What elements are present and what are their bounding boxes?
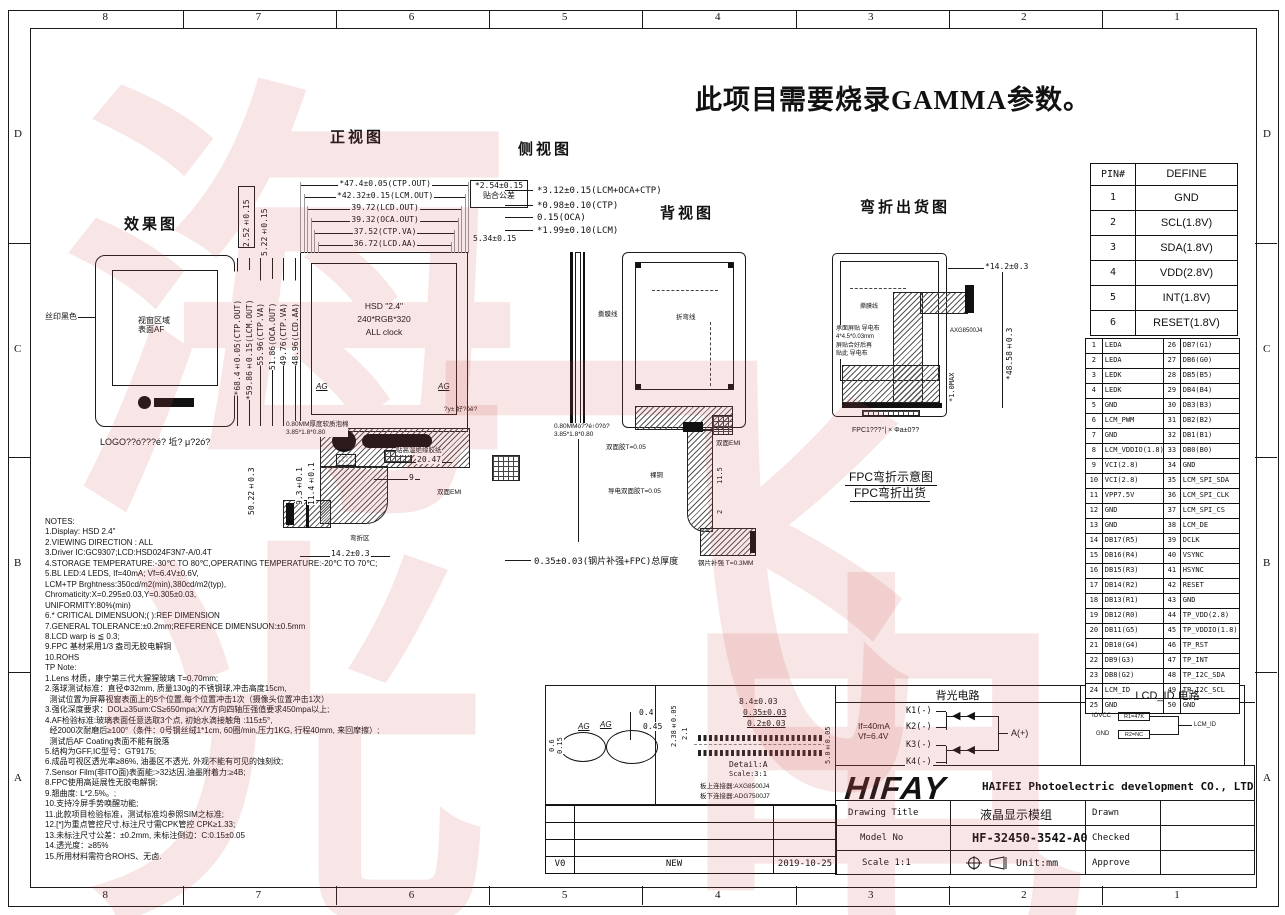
notes-block: NOTES:1.Display: HSD 2.4"2.VIEWING DIREC… bbox=[45, 517, 345, 862]
pin-num-left: 9 bbox=[1086, 459, 1103, 473]
side-bottom-note: 0.35±0.03(钢片补强+FPC)总厚度 bbox=[533, 554, 679, 567]
front-vdim-label: 51.86(OCA.OUT) bbox=[268, 279, 277, 370]
brand-logo-icon bbox=[138, 396, 151, 409]
note-line: 13.未标注尺寸公差：±0.2mm, 未标注倒边：C:0.15±0.05 bbox=[45, 831, 345, 841]
pin-num-right: 36 bbox=[1164, 489, 1181, 503]
back-stiff-label: 钢片补强 T=0.3MM bbox=[698, 560, 753, 568]
back-dash-h bbox=[652, 290, 718, 291]
bend-view-title: 弯折出货图 bbox=[858, 196, 952, 217]
lcdid-title: LCD_ID 电路 bbox=[1080, 687, 1255, 703]
tb-col-1 bbox=[950, 800, 951, 875]
note-line: 6.成品可视区透光率≥86%, 油墨区不透光, 外观不能有可见的蚀刻纹; bbox=[45, 757, 345, 767]
pin-name-left: GND bbox=[1103, 429, 1164, 443]
bend-bottom-block bbox=[842, 365, 940, 403]
revision-rev: V0 bbox=[546, 857, 575, 873]
revision-empty-row bbox=[546, 839, 836, 856]
pin-name-left: DB16(R4) bbox=[1103, 549, 1164, 563]
pin-define-num: 4 bbox=[1091, 261, 1136, 285]
company-logo: HIFAY bbox=[843, 770, 949, 807]
note-line: 6.* CRITICAL DIMENSUON;( ):REF DIMENSION bbox=[45, 611, 345, 621]
note-line: 测试位置为屏幕视窗表面上的5个位置,每个位置冲击1次（摄像头位置冲击1次） bbox=[45, 695, 345, 705]
pin-num-right: 35 bbox=[1164, 474, 1181, 488]
note-line: 测试后AF Coating表面不能有脱落 bbox=[45, 737, 345, 747]
front-bend-label: 弯折区 bbox=[350, 535, 370, 543]
pin-num-left: 5 bbox=[1086, 399, 1103, 413]
pin-define-header-num: PIN# bbox=[1091, 164, 1136, 185]
pin-define-header: PIN#DEFINE bbox=[1091, 164, 1237, 185]
back-corner-1 bbox=[636, 263, 641, 268]
pin-table-row: 15DB16(R4)40VSYNC bbox=[1086, 548, 1239, 563]
pin-name-right: DB3(B3) bbox=[1181, 399, 1239, 413]
note-line: 经2000次耐磨后≥100°（条件：0号钢丝绒1*1cm, 60圈/min,压力… bbox=[45, 726, 345, 736]
pin-num-right: 41 bbox=[1164, 564, 1181, 578]
revision-empty-date bbox=[774, 840, 836, 856]
pin-num-right: 29 bbox=[1164, 384, 1181, 398]
side-note-leader bbox=[505, 560, 531, 561]
pin-name-left: DB14(R2) bbox=[1103, 579, 1164, 593]
bend-dim-w: *14.2±0.3 bbox=[984, 262, 1029, 271]
note-line: 2.落球测试标准：直径Φ32mm, 质量130g的不锈钢球,冲击高度15cm, bbox=[45, 684, 345, 694]
pin-num-left: 8 bbox=[1086, 444, 1103, 458]
pin-name-left: GND bbox=[1103, 504, 1164, 518]
ag-dim-015: 0.15 bbox=[556, 726, 564, 754]
pin-define-value: VDD(2.8V) bbox=[1136, 261, 1237, 285]
pin-name-right: TP_INT bbox=[1181, 654, 1239, 668]
pin-table-row: 19DB12(R0)44TP_VDD(2.8) bbox=[1086, 608, 1239, 623]
front-hdim-label: 39.32(OCA.OUT) bbox=[350, 215, 419, 224]
back-bend-label: 折弯线 bbox=[676, 314, 696, 322]
pin-name-right: GND bbox=[1181, 594, 1239, 608]
pin-name-left: DB12(R0) bbox=[1103, 609, 1164, 623]
bl-wire-6 bbox=[998, 733, 1008, 734]
note-line: 8.FPC使用高延展性无胶电解铜; bbox=[45, 778, 345, 788]
led-pair-2: ◀◀ bbox=[952, 743, 981, 756]
front-hdim-ext-r bbox=[465, 194, 466, 253]
front-right-dim: 5.34±0.15 bbox=[472, 234, 517, 243]
front-hdim-label: *42.32±0.15(LCM.OUT) bbox=[336, 191, 434, 200]
pin-name-right: TP_VDDIO(1.8) bbox=[1181, 624, 1239, 638]
note-line: LCM+TP Brghtness:350cd/m2(min),380cd/m2(… bbox=[45, 580, 345, 590]
front-ag-right: AG bbox=[438, 382, 450, 391]
note-line: 4.AF检验标准:玻璃表面任意选取3个点, 初始水滴接触角 :115±5°, bbox=[45, 716, 345, 726]
brand-logo-text bbox=[154, 398, 194, 407]
pin-name-right: DB1(B1) bbox=[1181, 429, 1239, 443]
pin-num-right: 40 bbox=[1164, 549, 1181, 563]
side-dim-leader bbox=[505, 230, 533, 231]
note-line: 11.此款项目检验标准，测试标准均参照SIM之标准; bbox=[45, 810, 345, 820]
pin-num-left: 19 bbox=[1086, 609, 1103, 623]
pin-table-row: 4LEDK29DB4(B4) bbox=[1086, 383, 1239, 398]
pin-num-right: 45 bbox=[1164, 624, 1181, 638]
front-view-active-area bbox=[311, 263, 457, 415]
back-dash-v bbox=[710, 322, 711, 386]
front-hdim-ext-l bbox=[307, 206, 308, 253]
note-line: TP Note: bbox=[45, 663, 345, 673]
front-left-dim2: 5.22±0.15 bbox=[260, 196, 269, 256]
bend-connector bbox=[965, 285, 974, 313]
revision-empty-desc bbox=[575, 806, 774, 822]
tb-unit-value: Unit:mm bbox=[1016, 858, 1058, 869]
pin-name-left: VCI(2.8) bbox=[1103, 474, 1164, 488]
back-emi-label: 双面EMI bbox=[716, 440, 741, 448]
pin-num-right: 37 bbox=[1164, 504, 1181, 518]
front-dim-114: 11.4±0.1 bbox=[307, 450, 316, 505]
pin-num-left: 16 bbox=[1086, 564, 1103, 578]
bend-fpc-arm bbox=[920, 292, 968, 314]
tb-model-value: HF-32450-3542-A0 bbox=[972, 831, 1088, 845]
back-view-title: 背视图 bbox=[658, 202, 716, 223]
pin-name-right: LCM_SPI_CS bbox=[1181, 504, 1239, 518]
detail-a-conn2: 板下连接器:ADG7500J7 bbox=[700, 793, 770, 801]
note-line: 3.Driver IC:GC9307;LCD:HSD024F3N7-A/0.4T bbox=[45, 548, 345, 558]
pin-table-row: 23DB8(G2)48TP_I2C_SDA bbox=[1086, 668, 1239, 683]
pin-num-left: 23 bbox=[1086, 669, 1103, 683]
front-dim-142: 14.2±0.3 bbox=[330, 549, 371, 558]
front-hdim-ext-l bbox=[304, 194, 305, 253]
effect-view-title: 效果图 bbox=[122, 213, 180, 234]
effect-window-label: 视窗区域表面AF bbox=[138, 316, 170, 334]
side-view-title: 侧视图 bbox=[516, 138, 574, 159]
tape-label: 贴高温绝缘胶纸 bbox=[396, 447, 442, 455]
bend-note-block: 承面屏贴 导电布 4*4.5*0.03mm 屏贴合好后再 贴此 导电布 bbox=[836, 325, 880, 359]
front-hdim-ext-r bbox=[458, 218, 459, 253]
pin-num-right: 39 bbox=[1164, 534, 1181, 548]
pin-name-left: LEDA bbox=[1103, 339, 1164, 353]
lcdid-vcc: IOVCC bbox=[1092, 713, 1111, 721]
ag-stem bbox=[630, 712, 631, 740]
pin-table-row: 21DB10(G4)46TP_RST bbox=[1086, 638, 1239, 653]
company-name: HAIFEI Photoelectric development CO., LT… bbox=[982, 780, 1254, 793]
pin-name-right: TP_I2C_SDA bbox=[1181, 669, 1239, 683]
pin-name-right: LCM_SPI_CLK bbox=[1181, 489, 1239, 503]
pin-define-value: SDA(1.8V) bbox=[1136, 236, 1237, 260]
back-fpc-connector bbox=[750, 531, 756, 553]
note-line: 10.支持冷屏手势唤醒功能; bbox=[45, 799, 345, 809]
pin-name-left: GND bbox=[1103, 519, 1164, 533]
pin-num-right: 46 bbox=[1164, 639, 1181, 653]
side-dim-label: *1.99±0.10(LCM) bbox=[536, 226, 619, 236]
side-dim-label: *0.98±0.10(CTP) bbox=[536, 201, 619, 211]
ag-ellipse-left bbox=[560, 732, 606, 762]
pin-define-row: 6RESET(1.8V) bbox=[1091, 310, 1237, 335]
note-line: Chromaticity:X=0.295±0.03,Y=0.305±0.03, bbox=[45, 590, 345, 600]
pin-name-right: TP_VDD(2.8) bbox=[1181, 609, 1239, 623]
note-line: 12.[*]为重点管控尺寸,标注尺寸需CPK管控 CPK≥1.33; bbox=[45, 820, 345, 830]
bend-view-inner bbox=[840, 261, 939, 381]
pin-num-right: 47 bbox=[1164, 654, 1181, 668]
front-hdim-label: 39.72(LCD.OUT) bbox=[350, 203, 419, 212]
pin-table-row: 16DB15(R3)41HSYNC bbox=[1086, 563, 1239, 578]
pin-num-left: 17 bbox=[1086, 579, 1103, 593]
detail-a-pinrow-2 bbox=[698, 750, 822, 756]
pin-num-left: 21 bbox=[1086, 639, 1103, 653]
pin-name-left: GND bbox=[1103, 399, 1164, 413]
back-tear-label: 撕膜线 bbox=[598, 311, 618, 319]
front-fpc-foam bbox=[336, 454, 356, 466]
pin-table-row: 13GND38LCM_DE bbox=[1086, 518, 1239, 533]
back-view-inner bbox=[635, 262, 734, 390]
tb-line-3 bbox=[835, 850, 1255, 851]
detail-a-scale: Scale:3:1 bbox=[728, 770, 768, 778]
side-stack-1 bbox=[570, 252, 573, 432]
pin-name-left: DB8(G2) bbox=[1103, 669, 1164, 683]
front-ag-left: AG bbox=[316, 382, 328, 391]
pin-define-row: 2SCL(1.8V) bbox=[1091, 210, 1237, 235]
tb-model-label: Model No bbox=[860, 833, 903, 843]
revision-row: V0NEW2019-10-25 bbox=[546, 856, 836, 873]
revision-date: 2019-10-25 bbox=[774, 857, 836, 873]
pin-define-num: 2 bbox=[1091, 211, 1136, 235]
foam-label-2: 0.80MMò??é↑0?ô?3.85*1.8*0.80 bbox=[554, 423, 610, 439]
pin-name-left: VPP7.5V bbox=[1103, 489, 1164, 503]
pin-table-row: 5GND30DB3(B3) bbox=[1086, 398, 1239, 413]
pin-name-right: DB0(B0) bbox=[1181, 444, 1239, 458]
pin-name-left: DB10(G4) bbox=[1103, 639, 1164, 653]
note-line: 3.强化深度要求：DOL≥35um:CS≥650mpa;X/Y方向四轴压强值要求… bbox=[45, 705, 345, 715]
pin-name-left: LCM_PWM bbox=[1103, 414, 1164, 428]
note-line: 8.LCD warp is ≦ 0.3; bbox=[45, 632, 345, 642]
detail-a-dim-left2: 2.1 bbox=[681, 700, 689, 740]
front-hdim-ext-l bbox=[318, 242, 319, 253]
front-fpc-connector bbox=[286, 503, 294, 525]
revision-empty-date bbox=[774, 823, 836, 839]
detail-a-dim-035: 0.35±0.03 bbox=[742, 708, 787, 717]
front-dim-50: 50.22±0.3 bbox=[247, 445, 256, 515]
pin-table-row: 14DB17(R5)39DCLK bbox=[1086, 533, 1239, 548]
detail-a-dim-right: 5.0±0.05 bbox=[824, 718, 832, 764]
backlight-k-wire bbox=[936, 727, 946, 728]
pin-num-left: 20 bbox=[1086, 624, 1103, 638]
bend-dim-h: *48.58±0.3 bbox=[1005, 300, 1014, 380]
back-cond-label: 导电双面胶T=0.05 bbox=[608, 488, 661, 496]
back-dim-115: 11.5 bbox=[716, 452, 724, 484]
note-line: 10.ROHS bbox=[45, 653, 345, 663]
detail-a-conn1: 板上连接器:AXG8500J4 bbox=[700, 783, 769, 791]
ag-dim-04: 0.4 bbox=[638, 708, 654, 717]
pin-num-left: 6 bbox=[1086, 414, 1103, 428]
detail-a-centerline bbox=[694, 744, 826, 745]
pin-num-right: 44 bbox=[1164, 609, 1181, 623]
detail-a-dim-84: 8.4±0.03 bbox=[738, 697, 779, 706]
pin-table-row: 18DB13(R1)43GND bbox=[1086, 593, 1239, 608]
pin-name-left: DB17(R5) bbox=[1103, 534, 1164, 548]
pin-name-right: DCLK bbox=[1181, 534, 1239, 548]
pin-num-right: 38 bbox=[1164, 519, 1181, 533]
tb-drawn-label: Drawn bbox=[1092, 808, 1119, 818]
front-hdim-label: 37.52(CTP.VA) bbox=[353, 227, 418, 236]
back-bare-label: 裸铜 bbox=[650, 472, 663, 480]
pin-num-right: 32 bbox=[1164, 429, 1181, 443]
front-fpc-ic bbox=[362, 434, 432, 448]
front-hdim-label: 36.72(LCD.AA) bbox=[353, 239, 418, 248]
ag-label-right: AG bbox=[600, 720, 612, 729]
backlight-spec: If=40mAVf=6.4V bbox=[858, 722, 890, 742]
pin-name-right: DB2(B2) bbox=[1181, 414, 1239, 428]
note-line: 7.Sensor Film(非ITO面)表面能:>32达因,油墨附着力:≥4B; bbox=[45, 768, 345, 778]
tb-approve-label: Approve bbox=[1092, 858, 1130, 868]
side-dim-leader bbox=[505, 190, 533, 191]
tb-scale-label: Scale 1:1 bbox=[862, 858, 911, 868]
ag-dim-045: 0.45 bbox=[642, 722, 663, 731]
pin-num-left: 2 bbox=[1086, 354, 1103, 368]
pin-define-num: 1 bbox=[1091, 186, 1136, 210]
pin-name-left: DB15(R3) bbox=[1103, 564, 1164, 578]
side-dim-leader bbox=[505, 217, 533, 218]
pin-table: 1LEDA26DB7(G1)2LEDA27DB6(G0)3LEDK28DB5(B… bbox=[1085, 338, 1240, 714]
detail-a-dim-02: 0.2±0.03 bbox=[746, 719, 787, 728]
back-fpc-band bbox=[687, 430, 713, 532]
front-hdim-ext-r bbox=[451, 242, 452, 253]
pin-define-num: 3 bbox=[1091, 236, 1136, 260]
front-emi-label: 双面EMI bbox=[437, 489, 462, 497]
revision-table: V0NEW2019-10-25 bbox=[545, 805, 837, 874]
pin-num-left: 22 bbox=[1086, 654, 1103, 668]
pin-num-right: 30 bbox=[1164, 399, 1181, 413]
silk-leader bbox=[78, 317, 96, 318]
pin-name-left: LEDK bbox=[1103, 384, 1164, 398]
gamma-note: 此项目需要烧录GAMMA参数。 bbox=[695, 78, 1091, 117]
pin-name-left: LEDK bbox=[1103, 369, 1164, 383]
revision-empty-rev bbox=[546, 823, 575, 839]
revision-empty-desc bbox=[575, 840, 774, 856]
backlight-k-wire bbox=[936, 745, 946, 746]
lcdid-gnd: GND bbox=[1096, 731, 1109, 739]
foam-label-1: 0.80MM厚度软质泡棉3.85*1.8*0.80 bbox=[286, 421, 348, 437]
pin-table-row: 2LEDA27DB6(G0) bbox=[1086, 353, 1239, 368]
pin-table-row: 6LCM_PWM31DB2(B2) bbox=[1086, 413, 1239, 428]
bend-bottom-pins bbox=[862, 410, 920, 416]
tb-col-3 bbox=[1160, 800, 1161, 875]
side-stack-3 bbox=[583, 252, 585, 432]
pin-name-right: TP_RST bbox=[1181, 639, 1239, 653]
pin-define-num: 5 bbox=[1091, 286, 1136, 310]
pin-num-left: 14 bbox=[1086, 534, 1103, 548]
note-line: 15.所用材料需符合ROHS、无卤. bbox=[45, 852, 345, 862]
led-pair-1: ◀◀ bbox=[952, 709, 981, 722]
revision-empty-rev bbox=[546, 840, 575, 856]
bond-tolerance-box: *2.54±0.15 贴合公差 bbox=[470, 180, 528, 208]
note-line: 4.STORAGE TEMPERATURE:-30℃ TO 80℃,OPERAT… bbox=[45, 559, 345, 569]
pin-num-left: 12 bbox=[1086, 504, 1103, 518]
tb-line-2 bbox=[835, 825, 1255, 826]
pin-table-row: 11VPP7.5V36LCM_SPI_CLK bbox=[1086, 488, 1239, 503]
pin-num-right: 31 bbox=[1164, 414, 1181, 428]
pin-num-right: 28 bbox=[1164, 369, 1181, 383]
ag-ellipse-right bbox=[606, 730, 658, 764]
side-dim-label: 0.15(OCA) bbox=[536, 213, 587, 223]
bend-bottom-strip bbox=[842, 403, 942, 408]
revision-empty-row bbox=[546, 822, 836, 839]
tb-drawing-title-value: 液晶显示模组 bbox=[980, 806, 1052, 823]
back-bottom-comp bbox=[683, 422, 703, 432]
front-hdim-ext-l bbox=[314, 230, 315, 253]
pin-table-row: 10VCI(2.8)35LCM_SPI_SDA bbox=[1086, 473, 1239, 488]
pin-define-value: RESET(1.8V) bbox=[1136, 311, 1237, 335]
pin-num-left: 1 bbox=[1086, 339, 1103, 353]
pin-name-left: LEDA bbox=[1103, 354, 1164, 368]
pin-name-left: DB11(G5) bbox=[1103, 624, 1164, 638]
bend-dimh-line bbox=[1002, 272, 1003, 408]
pin-num-right: 42 bbox=[1164, 579, 1181, 593]
pin-name-right: DB6(G0) bbox=[1181, 354, 1239, 368]
note-line: 9.FPC 基材采用1/3 盎司无胶电解铜 bbox=[45, 642, 345, 652]
lcdid-out: LCM_ID bbox=[1194, 722, 1216, 730]
side-dim-leader bbox=[505, 205, 533, 206]
pin-define-row: 1GND bbox=[1091, 185, 1237, 210]
pin-table-row: 17DB14(R2)42RESET bbox=[1086, 578, 1239, 593]
back-dim-2: 2 bbox=[716, 498, 724, 514]
drawing-sheet: 8877665544332211DDCCBBAA 海飞光电 此项目需要烧录GAM… bbox=[0, 0, 1285, 915]
pin-define-value: INT(1.8V) bbox=[1136, 286, 1237, 310]
tb-checked-label: Checked bbox=[1092, 833, 1130, 843]
pin-define-value: SCL(1.8V) bbox=[1136, 211, 1237, 235]
bl-wire-1 bbox=[946, 712, 947, 730]
front-vdim-label: *59.86±0.15(LCM.OUT) bbox=[245, 270, 254, 400]
backlight-title: 背光电路 bbox=[835, 687, 1080, 703]
back-fpc-foot bbox=[700, 528, 756, 556]
side-fpc-line bbox=[578, 432, 579, 542]
pin-num-right: 48 bbox=[1164, 669, 1181, 683]
pin-name-right: DB5(B5) bbox=[1181, 369, 1239, 383]
note-line: 9.翘曲度: L*2.5%。; bbox=[45, 789, 345, 799]
pin-table-row: 22DB9(G3)47TP_INT bbox=[1086, 653, 1239, 668]
pin-num-left: 10 bbox=[1086, 474, 1103, 488]
revision-empty-desc bbox=[575, 823, 774, 839]
pin-table-row: 9VCI(2.8)34GND bbox=[1086, 458, 1239, 473]
backlight-k-label: K1(-) bbox=[905, 706, 933, 716]
side-stack-2 bbox=[575, 252, 581, 432]
pin-name-left: VCI(2.8) bbox=[1103, 459, 1164, 473]
pin-name-right: RESET bbox=[1181, 579, 1239, 593]
pin-table-row: 20DB11(G5)45TP_VDDIO(1.8) bbox=[1086, 623, 1239, 638]
lcdid-wire-2 bbox=[1150, 734, 1178, 735]
front-vdim-label: 55.96(CTP.VA) bbox=[256, 281, 265, 366]
back-corner-4 bbox=[728, 384, 733, 389]
pin-num-left: 13 bbox=[1086, 519, 1103, 533]
silk-label: 丝印黑色 bbox=[45, 312, 77, 321]
back-corner-2 bbox=[728, 263, 733, 268]
ag-label-left: AG bbox=[578, 722, 590, 731]
pin-num-left: 15 bbox=[1086, 549, 1103, 563]
front-dim-93: 9.3±0.1 bbox=[295, 455, 304, 505]
bend-caption-2: FPC弯折出货 bbox=[850, 484, 930, 502]
pin-table-row: 7GND32DB1(B1) bbox=[1086, 428, 1239, 443]
backlight-k-wire bbox=[936, 762, 946, 763]
revision-empty-rev bbox=[546, 806, 575, 822]
note-line: NOTES: bbox=[45, 517, 345, 527]
pin-num-right: 27 bbox=[1164, 354, 1181, 368]
pin-name-right: DB7(G1) bbox=[1181, 339, 1239, 353]
backlight-k-label: K2(-) bbox=[905, 722, 933, 732]
pin-num-right: 43 bbox=[1164, 594, 1181, 608]
pin-name-right: HSYNC bbox=[1181, 564, 1239, 578]
front-vdim-label: *68.4±0.05(CTP.OUT) bbox=[233, 272, 242, 396]
pin-table-row: 12GND37LCM_SPI_CS bbox=[1086, 503, 1239, 518]
pin-name-right: VSYNC bbox=[1181, 549, 1239, 563]
pin-define-header-def: DEFINE bbox=[1136, 164, 1237, 185]
front-mystery-label: ?y± 好?ôê? bbox=[444, 406, 477, 414]
bend-connector-label: AXG8500J4 bbox=[950, 328, 982, 336]
front-hdim-label: *47.4±0.05(CTP.OUT) bbox=[338, 179, 432, 188]
pin-table-row: 3LEDK28DB5(B5) bbox=[1086, 368, 1239, 383]
pin-num-left: 3 bbox=[1086, 369, 1103, 383]
front-vdim-label: 48.96(LCD.AA) bbox=[291, 281, 300, 366]
revision-empty-row bbox=[546, 806, 836, 822]
detail-a-name: Detail:A bbox=[728, 760, 769, 769]
front-hdim-ext-l bbox=[311, 218, 312, 253]
pin-table-row: 1LEDA26DB7(G1) bbox=[1086, 339, 1239, 353]
pin-name-right: LCM_SPI_SDA bbox=[1181, 474, 1239, 488]
